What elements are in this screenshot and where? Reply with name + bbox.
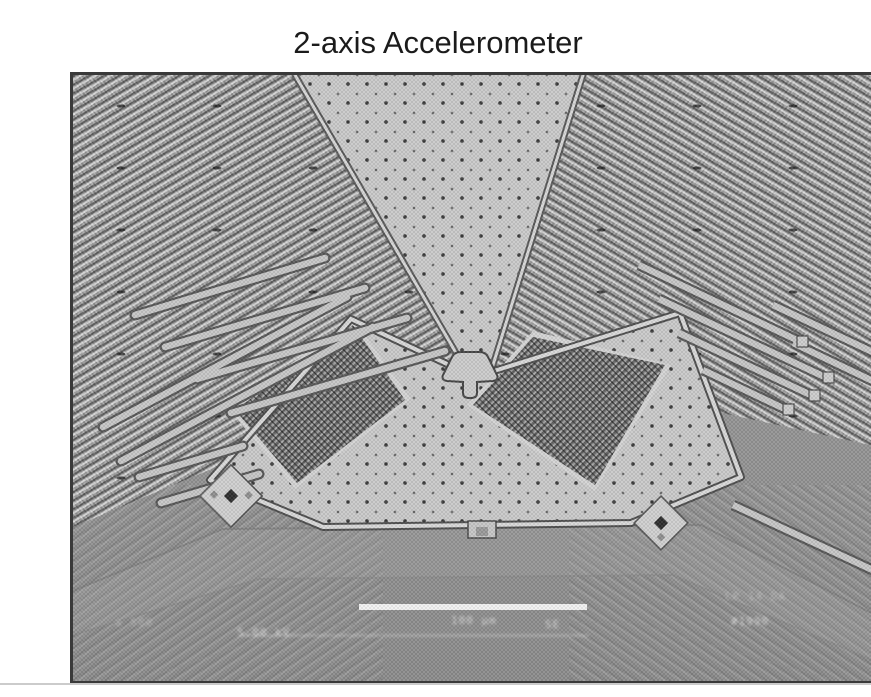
hud-right-label-bottom: #1990 bbox=[731, 615, 769, 628]
hud-right-label-top: LP 14 DA bbox=[725, 590, 786, 603]
scale-bar bbox=[359, 604, 587, 610]
central-anchor bbox=[443, 352, 498, 398]
bottom-divider bbox=[0, 683, 871, 685]
hud-detector-label: SE bbox=[545, 618, 560, 631]
page-title: 2-axis Accelerometer bbox=[33, 25, 843, 61]
hud-left-label: a 500 bbox=[115, 616, 153, 629]
hud-kv-label: 5.00 kV bbox=[237, 626, 290, 639]
hud-underline-smudge bbox=[241, 634, 589, 637]
substrate-contours bbox=[73, 525, 871, 681]
mass-bottom-tab bbox=[468, 521, 496, 538]
electrode-rails-left bbox=[103, 258, 445, 503]
hud-scale-label: 100 µm bbox=[451, 614, 497, 627]
sem-micrograph: a 500 5.00 kV 100 µm SE LP 14 DA #1990 bbox=[70, 72, 871, 684]
